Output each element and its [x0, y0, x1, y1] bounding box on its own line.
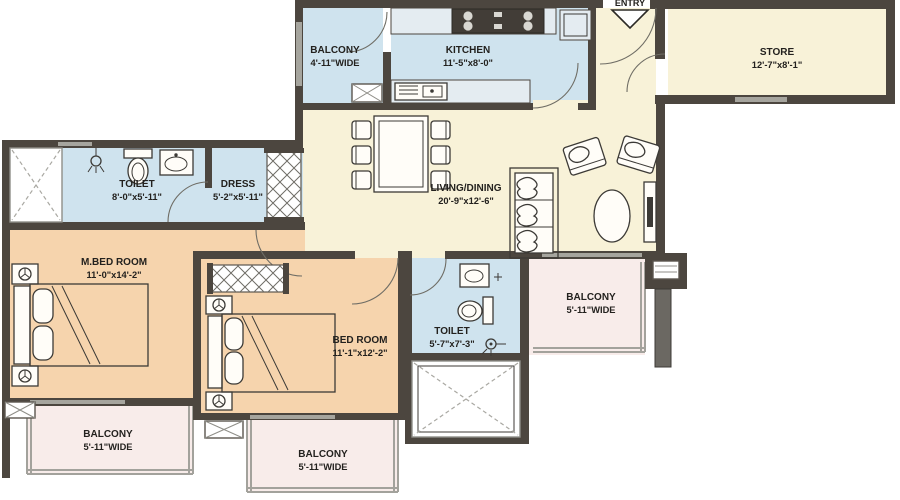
room-label-balcony-right: BALCONY5'-11"WIDE	[566, 292, 615, 316]
room-label-dress: DRESS5'-2"x5'-11"	[213, 179, 263, 203]
entry-label: ENTRY	[615, 0, 645, 8]
room-label-bed-room: BED ROOM11'-1"x12'-2"	[332, 335, 387, 359]
room-label-store: STORE12'-7"x8'-1"	[752, 47, 802, 71]
room-label-master-bed: M.BED ROOM11'-0"x14'-2"	[81, 257, 147, 281]
sofa-icon	[510, 168, 558, 258]
room-label-living-dining: LIVING/DINING20'-9"x12'-6"	[430, 183, 501, 207]
dining-table-icon	[352, 116, 450, 192]
sink-icon	[395, 83, 447, 100]
wardrobe-icon	[207, 263, 289, 294]
tv-unit-icon	[644, 182, 656, 242]
room-label-balcony-top: BALCONY4'-11"WIDE	[310, 45, 359, 69]
kitchen-counter-bottom	[391, 80, 530, 103]
coffee-table-icon	[594, 190, 630, 242]
stove-icon	[452, 9, 544, 33]
kitchen-counter-top	[391, 8, 556, 34]
room-label-toilet-1: TOILET8'-0"x5'-11"	[112, 179, 162, 203]
floor-plan: ENTRY BALCONY4'-11"WIDE KITCHEN11'-5"x8'…	[0, 0, 900, 500]
fridge-icon	[560, 10, 591, 40]
room-label-balcony-bottom-left: BALCONY5'-11"WIDE	[83, 429, 132, 453]
room-label-balcony-bottom-center: BALCONY5'-11"WIDE	[298, 449, 347, 473]
shaft-bottom-icon	[412, 361, 520, 437]
shaft-left-icon	[10, 148, 62, 222]
wardrobe-icon	[264, 148, 304, 222]
room-label-toilet-2: TOILET5'-7"x7'-3"	[429, 326, 474, 350]
washbasin-icon	[160, 150, 193, 175]
room-label-kitchen: KITCHEN11'-5"x8'-0"	[443, 45, 493, 69]
floor-plan-svg	[0, 0, 900, 500]
